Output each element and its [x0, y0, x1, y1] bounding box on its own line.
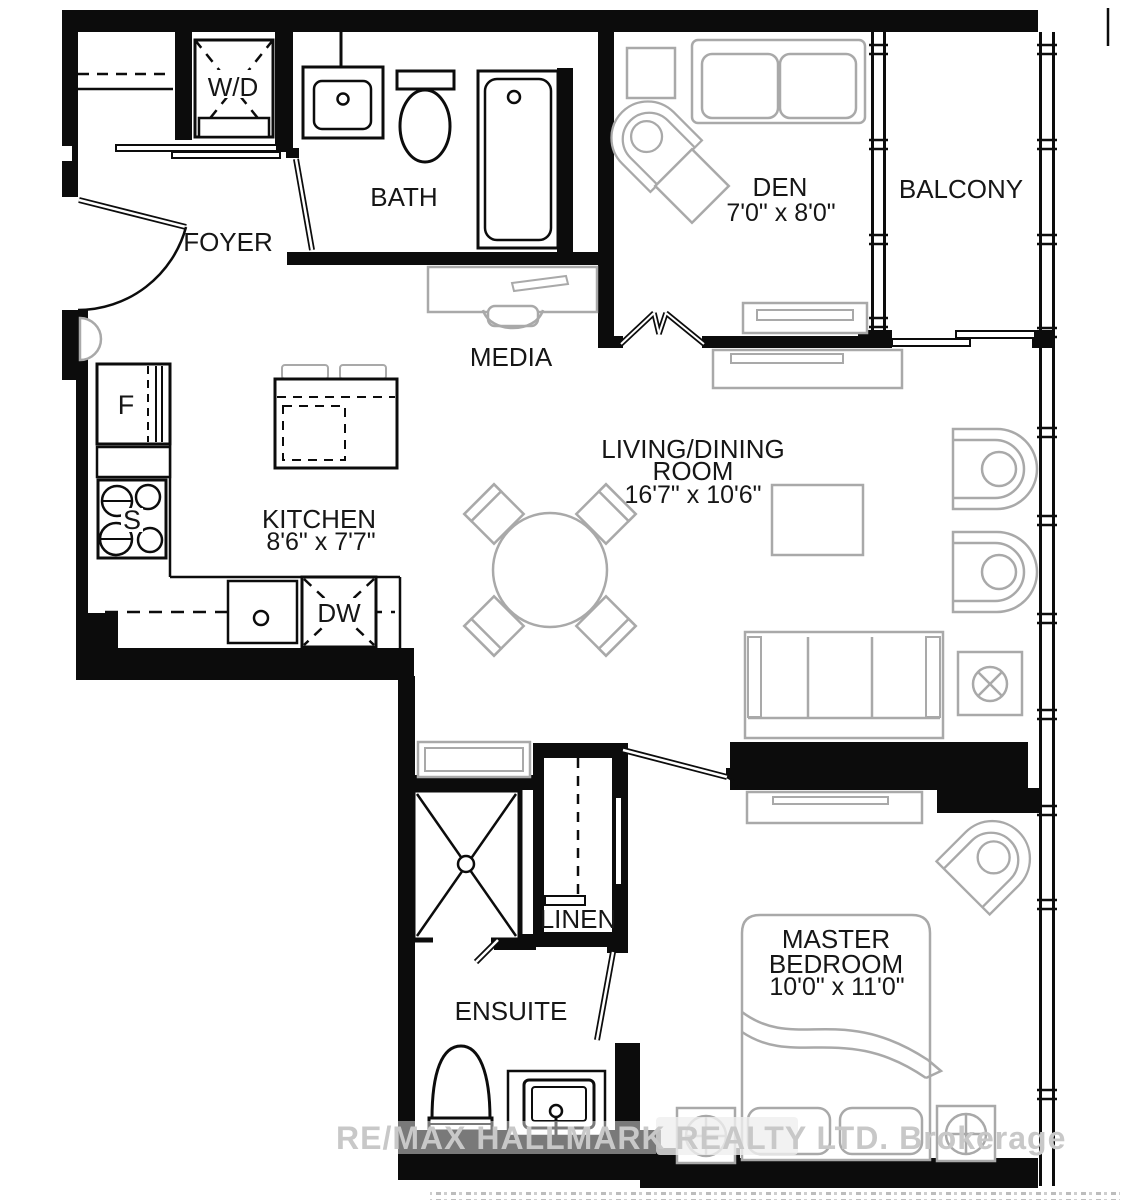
label-stove: S — [123, 505, 141, 535]
coffee-table — [772, 485, 863, 555]
room-label-linen: LINEN — [540, 904, 617, 934]
lamp-side-table — [958, 652, 1022, 715]
shower-opening — [433, 934, 491, 946]
room-dims-kitchen: 8'6" x 7'7" — [266, 528, 375, 556]
label-fridge: F — [118, 390, 135, 420]
kitchen-dishwasher: DW — [302, 577, 376, 647]
living-armchair-top — [953, 429, 1037, 509]
media-chair — [483, 306, 543, 328]
kitchen-fridge: F — [97, 364, 170, 444]
master-dresser — [747, 792, 922, 823]
bathtub — [478, 71, 558, 248]
bottom-cut-text — [430, 1192, 1120, 1200]
shower — [413, 790, 520, 962]
label-washer-dryer: W/D — [208, 72, 259, 102]
hall-shelf — [418, 742, 530, 777]
tv-console — [713, 350, 902, 388]
room-dims-master: 10'0" x 11'0" — [769, 973, 904, 1001]
den-sofa — [692, 40, 865, 123]
den-console — [743, 303, 867, 333]
bar-stool — [282, 365, 328, 379]
label-dishwasher: DW — [317, 598, 361, 628]
watermark: RE/MAX HALLMARK REALTY LTD. Brokerage — [331, 1117, 1066, 1156]
watermark-text: RE/MAX HALLMARK REALTY LTD. Brokerage — [336, 1120, 1066, 1156]
room-label-foyer: FOYER — [183, 227, 273, 257]
room-dims-living: 16'7" x 10'6" — [624, 481, 761, 509]
room-label-bath: BATH — [370, 182, 437, 212]
floor-plan-svg: W/D — [0, 0, 1126, 1200]
room-label-den: DEN — [753, 172, 808, 202]
living-armchair-bottom — [953, 532, 1037, 612]
bath-toilet — [397, 71, 454, 162]
den-side-table — [627, 48, 675, 98]
kitchen-stove: S — [98, 480, 166, 558]
room-label-balcony: BALCONY — [899, 174, 1023, 204]
room-label-ensuite: ENSUITE — [455, 996, 568, 1026]
kitchen-sink — [228, 581, 297, 643]
washer-dryer-closet: W/D — [195, 40, 273, 137]
bar-stool — [340, 365, 386, 379]
kitchen-island — [275, 365, 397, 468]
room-label-media: MEDIA — [470, 342, 553, 372]
floor-plan-page: W/D — [0, 0, 1126, 1200]
kitchen-cabinet — [97, 447, 170, 477]
room-dims-den: 7'0" x 8'0" — [726, 199, 835, 227]
living-sofa — [745, 632, 943, 738]
